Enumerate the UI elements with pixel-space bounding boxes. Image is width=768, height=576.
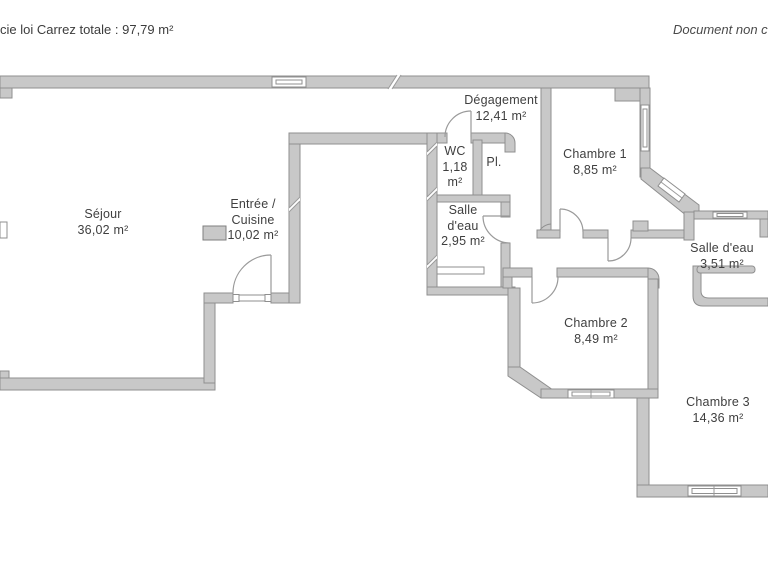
wall-chambre2-north-left (503, 268, 532, 277)
room-area: 10,02 m² (203, 228, 303, 244)
radiator (0, 222, 7, 238)
room-area: 36,02 m² (43, 223, 163, 239)
wall-entree-south-left (204, 293, 233, 303)
wall-salleeau2-west-upper (684, 212, 694, 240)
wall-top (0, 76, 649, 88)
room-name: Chambre 3 (658, 395, 768, 411)
room-name: Chambre 1 (536, 147, 654, 163)
room-name: Séjour (43, 207, 163, 223)
room-area: 8,49 m² (537, 332, 655, 348)
walls (0, 76, 768, 497)
wall-placard-curve (505, 133, 515, 152)
wall-entree-west (204, 293, 215, 383)
wall-chambre2-north-right (557, 268, 648, 277)
label-wc: WC 1,18 m² (432, 144, 478, 191)
room-name: d'eau (429, 219, 497, 235)
wall-chambre3-west (637, 398, 649, 497)
wall-chambre2-west-stub (503, 277, 512, 288)
wall-wc-salleeau-divider (437, 195, 510, 202)
window-salleeau2 (713, 212, 747, 218)
room-area: 14,36 m² (658, 411, 768, 427)
label-degagement: Dégagement 12,41 m² (441, 93, 561, 124)
wall-right-edge-stub (760, 219, 768, 237)
floor-plan-drawing (0, 0, 768, 576)
floor-plan-page: cie loi Carrez totale : 97,79 m² Documen… (0, 0, 768, 576)
vanity-counter (437, 267, 484, 274)
wall-chambre2-west (508, 288, 520, 367)
room-name: Entrée / (203, 197, 303, 213)
room-area-unit: m² (432, 175, 478, 191)
label-salle-eau-2: Salle d'eau 3,51 m² (662, 241, 768, 272)
label-chambre2: Chambre 2 8,49 m² (537, 316, 655, 347)
pillar (633, 221, 648, 231)
label-entree-cuisine: Entrée / Cuisine 10,02 m² (203, 197, 303, 244)
room-name: Dégagement (441, 93, 561, 109)
wall-salleeau1-south (427, 287, 515, 295)
wall-salleeau1-east-upper (501, 202, 510, 217)
window-chambre1 (641, 105, 649, 151)
label-sejour: Séjour 36,02 m² (43, 207, 163, 238)
wall-break-marks (289, 75, 437, 269)
label-chambre1: Chambre 1 8,85 m² (536, 147, 654, 178)
wall-sejour-bottom (0, 378, 215, 390)
room-name: Pl. (479, 155, 509, 171)
room-name: WC (432, 144, 478, 160)
window-chambre3 (688, 486, 741, 496)
label-salle-eau-1: Salle d'eau 2,95 m² (429, 203, 497, 250)
room-area: 3,51 m² (662, 257, 768, 273)
window-sejour (272, 77, 306, 87)
room-name: Cuisine (203, 213, 303, 229)
wall-strip-1 (537, 230, 560, 238)
window-chambre2 (568, 390, 614, 398)
wall-corridor-south (289, 133, 437, 144)
label-placard: Pl. (479, 155, 509, 171)
room-name: Chambre 2 (537, 316, 655, 332)
room-area: 1,18 (432, 160, 478, 176)
room-name: Salle d'eau (662, 241, 768, 257)
room-area: 2,95 m² (429, 234, 497, 250)
room-name: Salle (429, 203, 497, 219)
door-chambre2 (532, 277, 558, 303)
label-chambre3: Chambre 3 14,36 m² (658, 395, 768, 426)
room-area: 12,41 m² (441, 109, 561, 125)
door-corridor (608, 238, 631, 261)
door-entree (233, 255, 271, 302)
wall-strip-2 (583, 230, 608, 238)
wall-top-left-step (0, 88, 12, 98)
room-area: 8,85 m² (536, 163, 654, 179)
door-chambre1 (560, 209, 583, 232)
